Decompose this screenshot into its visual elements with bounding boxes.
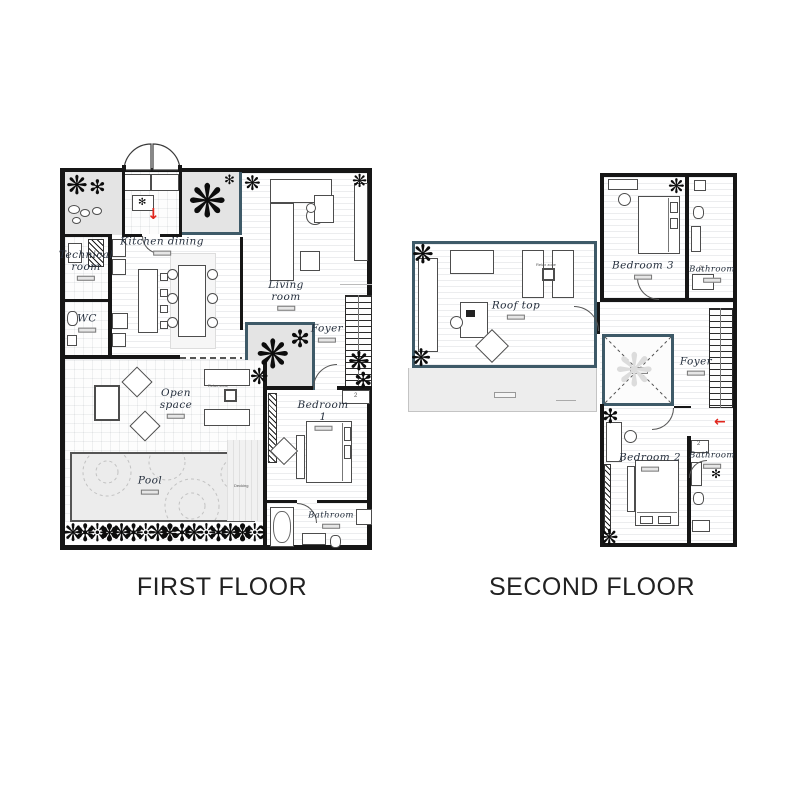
room-label-bathroom-2: Bathroom [689, 452, 735, 462]
wall [733, 302, 737, 547]
stairs-second-floor [709, 308, 733, 408]
bed-divider [342, 423, 343, 481]
pillow [344, 445, 351, 459]
stairs-arrow-icon: ← [714, 414, 726, 430]
area-box [77, 275, 95, 280]
kitchen-island [138, 269, 158, 333]
wall [122, 172, 125, 237]
plant-icon: ❋ [244, 173, 261, 193]
shower-label: 2 [354, 393, 357, 399]
plant-icon: ✻ [224, 174, 235, 187]
sink-icon [694, 180, 706, 191]
stair-rail [720, 308, 721, 408]
plant-icon: ❋ [668, 176, 685, 196]
area-box [703, 463, 721, 468]
shower [356, 509, 372, 525]
stone [72, 217, 81, 224]
ottoman [300, 251, 320, 271]
green-zone-center: ❋ ✻ ❋ [245, 322, 315, 390]
floor-plan-sheet: ❋ ✻ ✻ ↓ ❋ ✻ ❋ ❋ [0, 0, 800, 800]
room-label-wc: WC [77, 314, 97, 326]
sofa [418, 258, 438, 352]
plant-icon: ❋ [250, 367, 268, 389]
sun-lounger [552, 250, 574, 298]
sink-icon [67, 335, 77, 346]
side-desk [314, 195, 334, 223]
fireplace [94, 385, 120, 421]
kitchen-counter [112, 259, 126, 275]
first-floor-plan: ❋ ✻ ✻ ↓ ❋ ✻ ❋ ❋ [58, 143, 378, 555]
second-floor-plan: ❋ 2 Relax zone ❋ ❋ ❋ [406, 168, 742, 552]
dining-chair [207, 293, 218, 304]
dining-table [178, 265, 206, 337]
plant-icon: ❋ [600, 528, 618, 550]
plant-icon: ✻ [89, 177, 106, 197]
dining-chair [207, 317, 218, 328]
room-label-bedroom-3: Bedroom 3 [612, 261, 674, 273]
dimension-line [556, 400, 576, 401]
area-box [78, 327, 96, 332]
desk [460, 302, 488, 338]
area-box [153, 250, 171, 255]
room-label-kitchen-dining: Kitchen dining [120, 237, 204, 249]
entrance-arrow-icon: ↓ [147, 205, 160, 223]
desk [608, 179, 638, 190]
deck-strip [227, 440, 265, 521]
relax-zone-label: Relax zone [536, 262, 556, 267]
plant-icon: ❋ [411, 346, 431, 370]
wardrobe-rail [604, 464, 611, 534]
office-chair [450, 316, 463, 329]
room-label-technical-room: Technical room [59, 250, 113, 274]
dimension-line [340, 284, 372, 285]
area-box [277, 305, 295, 310]
plant-icon: ✻ [290, 327, 310, 351]
room-label-bathroom-ff: Bathroom [308, 512, 354, 522]
dining-chair [167, 317, 178, 328]
dining-chair [167, 293, 178, 304]
room-label-pool: Pool [138, 476, 162, 488]
toilet-icon [693, 206, 704, 219]
plant-icon: ✻ [602, 406, 619, 426]
kitchen-counter [112, 333, 126, 347]
sofa [270, 203, 294, 281]
green-zone-palm: ❋ ✻ [182, 172, 242, 235]
sun-lounger [522, 250, 544, 298]
wardrobe [124, 174, 151, 191]
wardrobe [151, 174, 179, 191]
area-box [507, 314, 525, 319]
area-box [167, 413, 185, 418]
area-box [141, 489, 159, 494]
entrance-double-door [122, 143, 182, 171]
room-label-bedroom-2: Bedroom 2 [619, 453, 681, 465]
area-box [322, 523, 340, 528]
decor-plant-icon: ✻ [138, 198, 146, 208]
wall [685, 173, 689, 302]
relax-zone-box [542, 268, 555, 281]
area-box [314, 425, 332, 430]
tv-unit [354, 183, 368, 261]
area-box [318, 337, 336, 342]
area-box [703, 277, 721, 282]
room-label-bedroom-1: Bedroom 1 [296, 400, 351, 424]
room-label-foyer-sf: Foyer [680, 357, 712, 369]
room-label-open-space: Open space [160, 388, 192, 412]
bathtub-basin [273, 511, 291, 543]
plant-icon: ✻ [354, 371, 372, 393]
bench [296, 435, 305, 479]
room-label-roof-top: Roof top [492, 301, 540, 313]
pillow [640, 516, 653, 524]
relax-zone-box [224, 389, 237, 402]
hedge-plants-icon: ❋✻❊✽❋✻❊❋✽✻❋❊✻❋✽❊❋✻ [63, 521, 265, 545]
faint-palm-icon: ❋ [615, 347, 654, 393]
wall [317, 500, 372, 503]
dining-chair [167, 269, 178, 280]
vanity [691, 226, 701, 252]
room-label-bathroom-3: Bathroom [689, 266, 735, 276]
second-floor-title: SECOND FLOOR [489, 573, 695, 602]
plant-hedge: ❋✻❊✽❋✻❊❋✽✻❋❊✻❋✽❊❋✻ [63, 521, 265, 548]
plant-icon: ❋ [352, 173, 367, 191]
room-label-living-room: Living room [268, 280, 304, 304]
wall [267, 500, 297, 503]
toilet-icon [330, 535, 341, 548]
laptop [466, 310, 475, 317]
dining-chair [207, 269, 218, 280]
vanity [302, 533, 326, 545]
stool [624, 430, 637, 443]
plant-icon: ❋ [66, 173, 88, 199]
sofa [450, 250, 494, 274]
palm-icon: ❋ [188, 178, 227, 224]
stone [68, 205, 80, 214]
green-zone-topleft: ❋ ✻ [65, 172, 122, 235]
shower-label: 2 [697, 441, 700, 447]
bed-divider [668, 198, 669, 252]
wall [600, 543, 737, 547]
stone [92, 207, 102, 215]
plant-icon: ❋ [412, 242, 434, 268]
sliding-door-track [180, 357, 242, 359]
area-box [634, 274, 652, 279]
toilet-icon [693, 492, 704, 505]
relax-zone-label: Relax zone [208, 383, 228, 388]
first-floor-title: FIRST FLOOR [137, 573, 307, 602]
kitchen-counter [112, 313, 128, 329]
terrace-strip [408, 368, 597, 412]
sink-icon [692, 520, 710, 532]
terrace-label-box [494, 392, 516, 398]
pillow [670, 202, 678, 213]
stool [618, 193, 631, 206]
pillow [670, 218, 678, 229]
bar-stool [160, 305, 168, 313]
wall [240, 237, 243, 330]
area-box [641, 466, 659, 471]
bench [627, 466, 635, 512]
sun-lounger [204, 409, 250, 426]
room-label-foyer-ff: Foyer [311, 324, 343, 336]
area-box [687, 370, 705, 375]
wall [61, 355, 180, 359]
decor-plant-icon: ✻ [711, 468, 721, 480]
chair [306, 203, 316, 213]
bed-divider [637, 512, 677, 513]
decking-label: Decking [234, 483, 248, 488]
stone [80, 209, 90, 217]
wall [267, 386, 313, 390]
pillow [658, 516, 671, 524]
void-opening: ❋ [602, 334, 674, 406]
